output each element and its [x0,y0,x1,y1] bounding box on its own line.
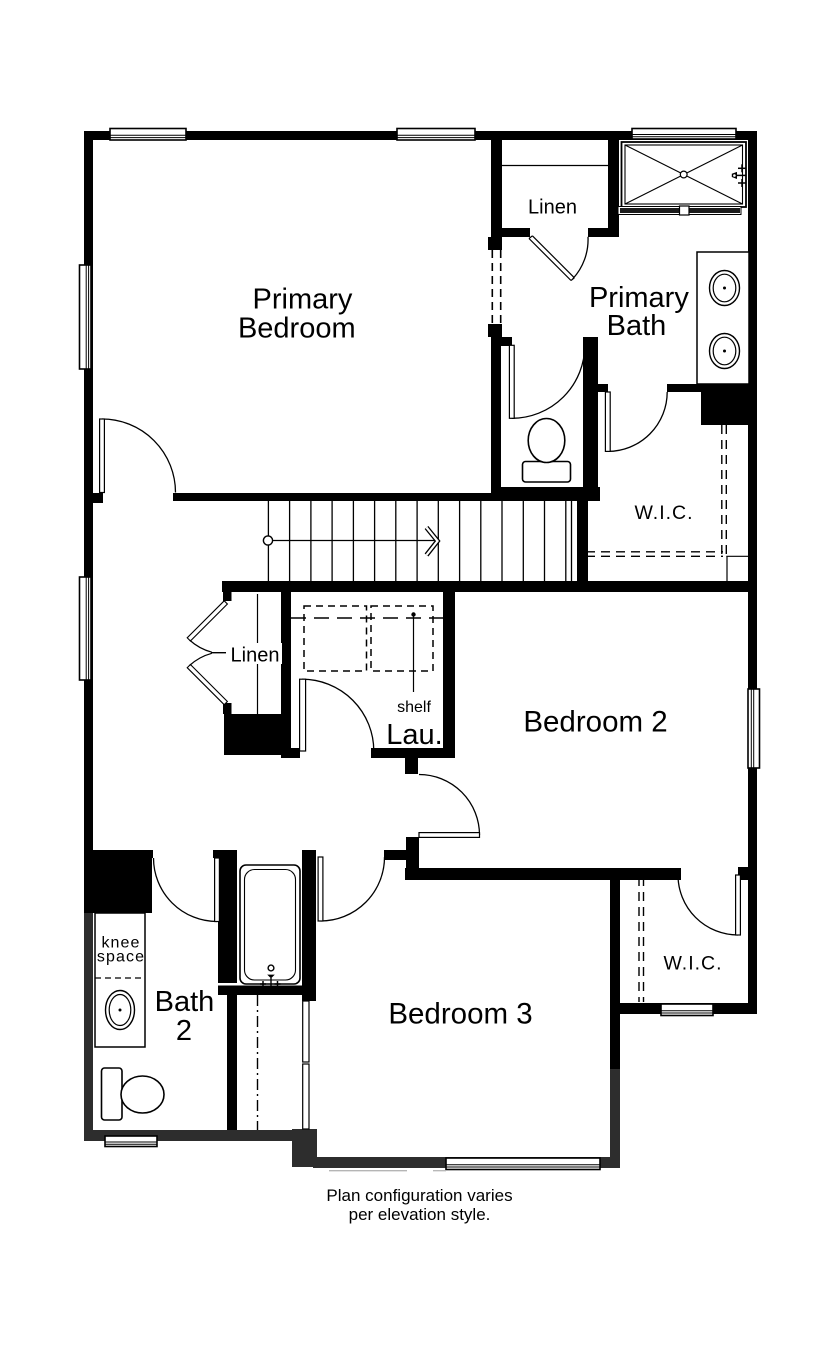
svg-text:Bath: Bath [155,986,215,1018]
svg-text:Bedroom: Bedroom [238,312,356,344]
svg-text:W.I.C.: W.I.C. [634,502,693,524]
svg-text:shelf: shelf [397,699,431,716]
svg-text:per elevation style.: per elevation style. [349,1205,491,1224]
svg-text:Lau.: Lau. [386,719,442,751]
svg-text:2: 2 [176,1015,192,1047]
svg-text:Bedroom 3: Bedroom 3 [388,998,532,1031]
svg-text:Linen: Linen [528,197,577,219]
svg-text:space: space [97,949,145,966]
svg-text:Bath: Bath [607,310,667,342]
svg-text:Primary: Primary [253,283,353,315]
svg-text:Plan configuration varies: Plan configuration varies [326,1186,512,1205]
svg-text:W.I.C.: W.I.C. [663,953,722,975]
svg-text:Linen: Linen [231,645,280,667]
svg-text:Bedroom 2: Bedroom 2 [523,706,667,739]
